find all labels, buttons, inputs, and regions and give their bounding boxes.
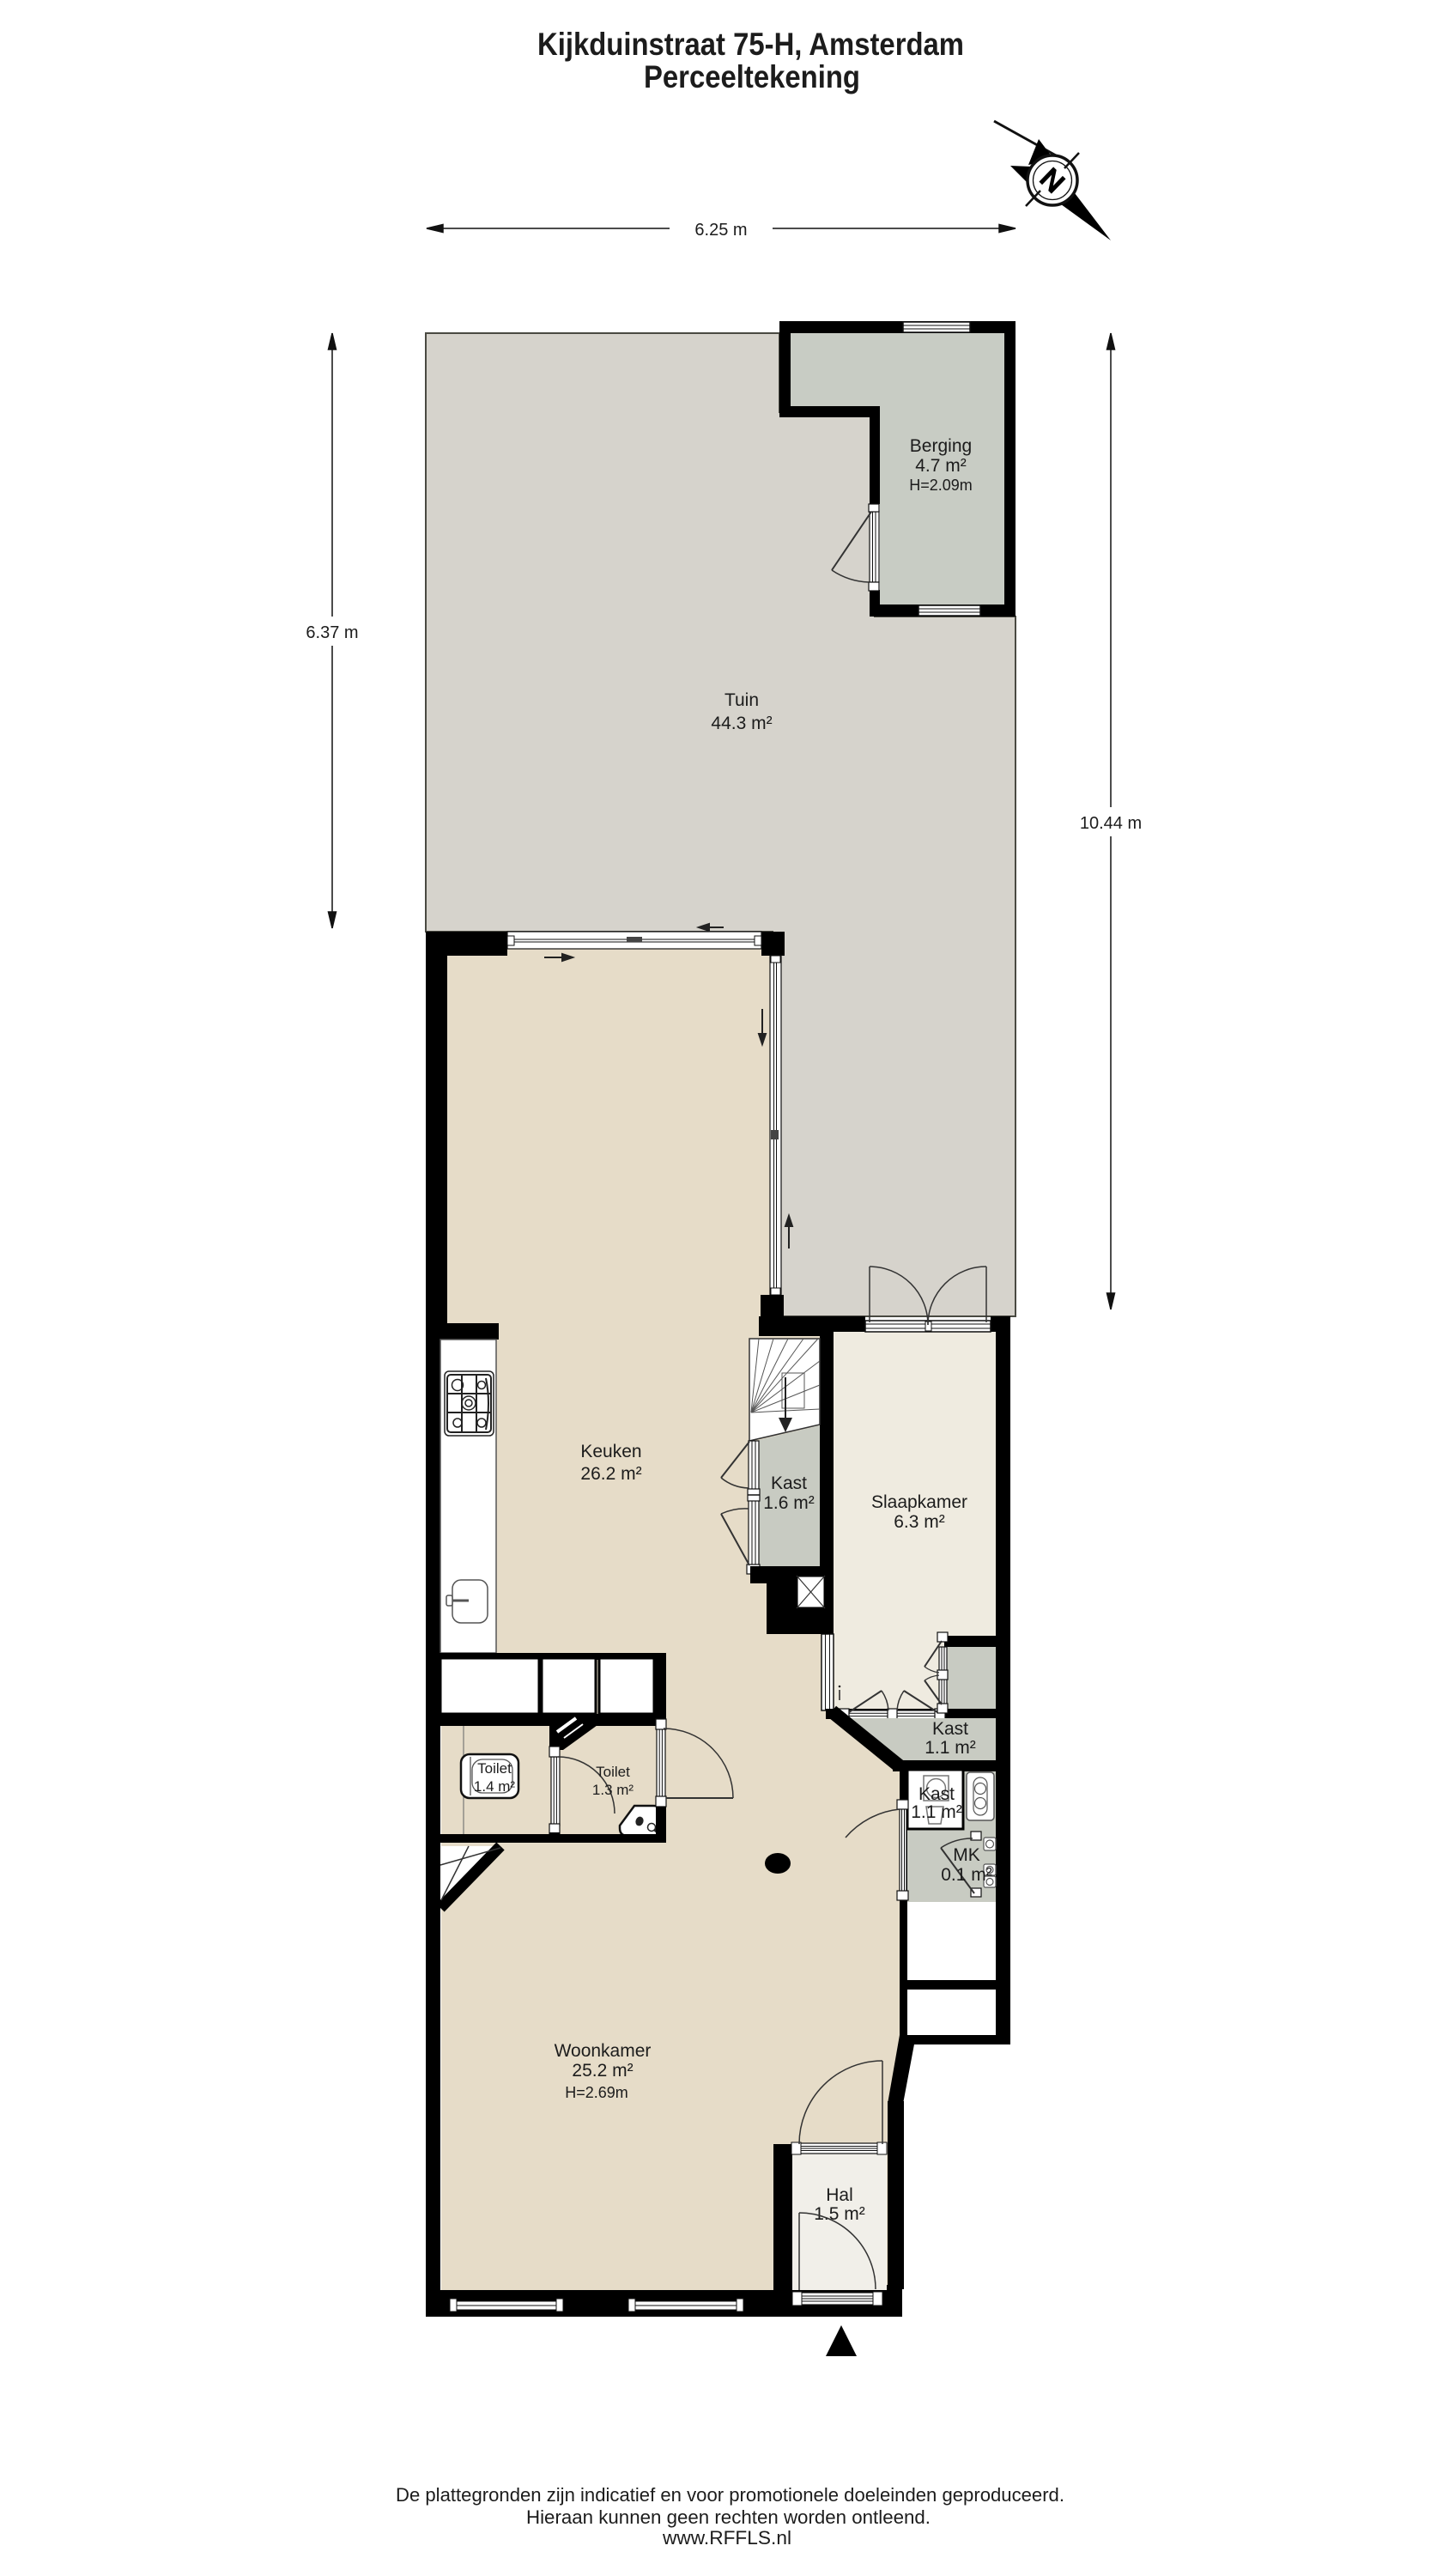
svg-text:Toilet: Toilet [596, 1764, 630, 1780]
svg-text:6.37 m: 6.37 m [306, 623, 358, 642]
svg-text:Perceeltekening: Perceeltekening [644, 59, 860, 94]
svg-text:1.1 m²: 1.1 m² [925, 1738, 976, 1758]
svg-text:H=2.69m: H=2.69m [565, 2084, 628, 2101]
svg-text:H=2.09m: H=2.09m [909, 477, 973, 494]
svg-text:0.1 m²: 0.1 m² [941, 1865, 992, 1885]
svg-text:MK: MK [953, 1845, 980, 1865]
svg-text:1.5 m²: 1.5 m² [814, 2204, 865, 2224]
svg-text:4.7 m²: 4.7 m² [915, 456, 967, 476]
svg-text:1.1 m²: 1.1 m² [911, 1802, 962, 1822]
svg-text:26.2 m²: 26.2 m² [580, 1464, 641, 1484]
svg-text:Slaapkamer: Slaapkamer [871, 1492, 967, 1512]
svg-text:Kijkduinstraat 75-H, Amsterdam: Kijkduinstraat 75-H, Amsterdam [537, 27, 964, 62]
svg-text:6.25 m: 6.25 m [694, 221, 747, 240]
svg-text:1.6 m²: 1.6 m² [763, 1493, 815, 1513]
svg-text:10.44 m: 10.44 m [1080, 814, 1142, 833]
svg-text:1.4 m²: 1.4 m² [474, 1778, 516, 1795]
svg-text:Tuin: Tuin [724, 690, 759, 710]
svg-text:44.3 m²: 44.3 m² [711, 714, 772, 733]
svg-text:Woonkamer: Woonkamer [555, 2041, 652, 2061]
svg-text:De plattegronden zijn indicati: De plattegronden zijn indicatief en voor… [396, 2484, 1064, 2506]
svg-text:Hal: Hal [826, 2185, 853, 2205]
svg-text:Kast: Kast [919, 1784, 955, 1804]
svg-text:Hieraan kunnen geen rechten wo: Hieraan kunnen geen rechten worden ontle… [526, 2506, 931, 2528]
svg-text:Keuken: Keuken [580, 1442, 641, 1461]
svg-text:1.3 m²: 1.3 m² [592, 1782, 634, 1798]
svg-text:Toilet: Toilet [477, 1760, 512, 1777]
svg-text:Kast: Kast [771, 1473, 807, 1493]
svg-text:www.RFFLS.nl: www.RFFLS.nl [662, 2527, 791, 2549]
svg-text:Berging: Berging [910, 436, 972, 456]
svg-text:Kast: Kast [932, 1719, 968, 1739]
svg-text:25.2 m²: 25.2 m² [572, 2061, 633, 2081]
svg-text:6.3 m²: 6.3 m² [894, 1512, 945, 1532]
